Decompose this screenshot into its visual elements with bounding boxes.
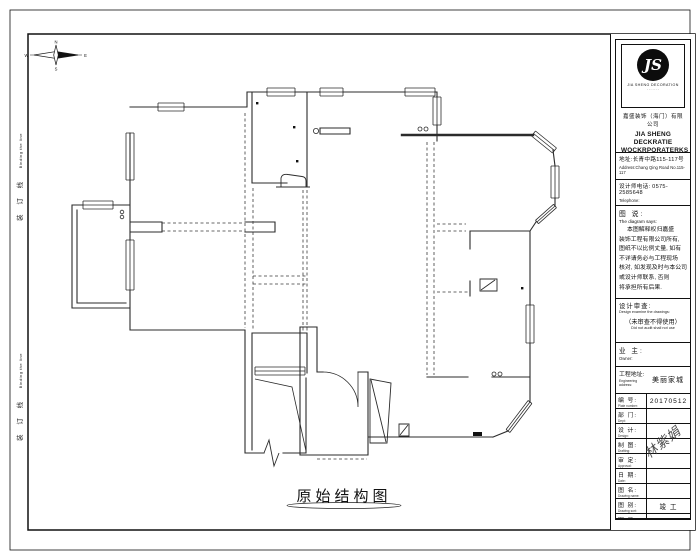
row-value: 20170512 — [647, 394, 690, 408]
address-section: 地址:长青中路115-117号 Address:Chang Qing Road … — [616, 153, 690, 180]
logo-frame: JS JIA SHENG DECORATION · · · · · · · — [621, 44, 685, 108]
company-logo-icon: JS — [637, 49, 669, 81]
company-name-en-line1: JIA SHENG DECKRATIE — [621, 131, 685, 147]
says-label-cn: 图 说: — [619, 208, 687, 218]
title-block-inner: JS JIA SHENG DECORATION · · · · · · · 嘉盛… — [615, 39, 691, 520]
owner-label-cn: 业 主: — [619, 345, 687, 355]
binding-line-cn: 装 订 线 — [17, 398, 24, 441]
says-line: 或设计师联系, 否则 — [619, 274, 687, 284]
company-name-en: JIA SHENG DECKRATIE WOCKRPORATERKS — [621, 131, 685, 153]
row-value: PM 01 — [647, 514, 690, 519]
project-address-en: Engineering address: — [619, 379, 646, 387]
sheet-frame — [10, 10, 695, 550]
says-line: 装饰工程有限公司所有, — [619, 236, 687, 246]
row-value — [647, 424, 690, 438]
info-table: 编 号:Plate number: 20170512 部 门:Dept: 设 计… — [616, 394, 690, 519]
row-label-cn: 部 门: — [618, 410, 646, 419]
drawing-title: 原始结构图 — [272, 485, 416, 506]
logo-section: JS JIA SHENG DECORATION · · · · · · · 嘉盛… — [616, 40, 690, 153]
table-row-drawing-name: 图 名:Drawing name: — [616, 483, 690, 498]
review-label-en: Design examine the drawings: — [619, 310, 687, 314]
says-line: 核对, 如发现及时与本公司 — [619, 264, 687, 274]
row-label-cn: 图 名: — [618, 485, 646, 494]
table-row-date: 日 期:Date: — [616, 468, 690, 483]
table-row-dept: 部 门:Dept: — [616, 408, 690, 423]
title-block: JS JIA SHENG DECORATION · · · · · · · 嘉盛… — [610, 34, 695, 530]
project-address-cn: 工程地址: — [619, 369, 646, 378]
review-label-cn: 设计审查: — [619, 301, 687, 310]
compass-icon: N E S W — [25, 40, 88, 72]
says-line: 图纸不以比例丈量, 如有 — [619, 245, 687, 255]
binding-line-en: Binding the line — [18, 353, 23, 388]
binding-line-cn: 装 订 线 — [17, 178, 24, 221]
phone-section: 设计师电话: 0575-2585648 Telephone: — [616, 180, 690, 206]
address-cn: 地址:长青中路115-117号 — [619, 155, 687, 163]
binding-line-label-bottom: 装 订 线 Binding the line — [9, 336, 27, 458]
says-line: 本图解释权归嘉盛 — [619, 226, 687, 236]
row-value — [647, 454, 690, 468]
table-row-number: 编 号:Plate number: 20170512 — [616, 394, 690, 408]
binding-line-en: Binding the line — [18, 133, 23, 168]
table-row-drawing-number: 图 号:Drawing number: PM 01 — [616, 513, 690, 519]
row-value — [647, 409, 690, 423]
plan-walls — [72, 92, 555, 455]
row-value — [647, 439, 690, 453]
design-review-section: 设计审查: Design examine the drawings: （未审查不… — [616, 299, 690, 343]
project-address-label: 工程地址: Engineering address: — [616, 367, 646, 393]
floor-plan-canvas: N E S W — [0, 0, 700, 560]
project-address-value: 美丽家城 — [646, 367, 690, 393]
row-label-cn: 编 号: — [618, 395, 646, 404]
row-label-cn: 图 号: — [618, 515, 646, 519]
says-line: 将承担所有后果. — [619, 284, 687, 294]
says-line: 不详请务必与工程现场 — [619, 255, 687, 265]
row-value — [647, 484, 690, 498]
row-label-cn: 图 别: — [618, 500, 646, 509]
phone-cn: 设计师电话: 0575-2585648 — [619, 182, 687, 196]
compass-e-label: E — [84, 53, 87, 58]
row-label-cn: 设 计: — [618, 425, 646, 434]
compass-n-label: N — [54, 40, 57, 45]
table-row-drawing-sort: 图 别:Drawing sort: 竣 工 — [616, 498, 690, 513]
plan-fixtures — [256, 102, 523, 466]
row-label-cn: 审 定: — [618, 455, 646, 464]
review-note-en: Did not audit shall not use — [619, 326, 687, 330]
owner-section: 业 主: Owner: — [616, 343, 690, 367]
logo-caption: JIA SHENG DECORATION — [622, 83, 684, 87]
compass-w-label: W — [25, 53, 29, 58]
table-row-approval: 审 定:Approval: — [616, 453, 690, 468]
diagram-says-section: 图 说: The diagram says: 本图解释权归嘉盛 装饰工程有限公司… — [616, 206, 690, 299]
logo-monogram: JS — [644, 56, 662, 74]
company-name-cn: 嘉盛装饰（海门）有限公司 — [621, 112, 685, 128]
table-row-design: 设 计:Design: — [616, 423, 690, 438]
binding-line-label-top: 装 订 线 Binding the line — [9, 116, 27, 238]
logo-subcaption: · · · · · · · — [622, 88, 684, 92]
row-value: 竣 工 — [647, 499, 690, 513]
says-body: 本图解释权归嘉盛 装饰工程有限公司所有, 图纸不以比例丈量, 如有 不详请务必与… — [619, 226, 687, 293]
row-label-cn: 日 期: — [618, 470, 646, 479]
drawing-sheet: N E S W — [0, 0, 700, 560]
owner-label-en: Owner: — [619, 356, 687, 361]
plan-dashed-beams — [162, 113, 468, 459]
table-row-drafting: 制 图:Drafting: — [616, 438, 690, 453]
phone-en: Telephone: — [619, 198, 687, 203]
address-en: Address:Chang Qing Road No.115-117 — [619, 165, 687, 175]
compass-s-label: S — [55, 67, 58, 72]
row-label-cn: 制 图: — [618, 440, 646, 449]
plan-doors — [120, 127, 502, 451]
review-note-cn: （未审查不得使用） — [619, 317, 687, 326]
plan-windows — [83, 88, 559, 433]
row-value — [647, 469, 690, 483]
project-address-section: 工程地址: Engineering address: 美丽家城 — [616, 367, 690, 394]
says-label-en: The diagram says: — [619, 219, 687, 224]
